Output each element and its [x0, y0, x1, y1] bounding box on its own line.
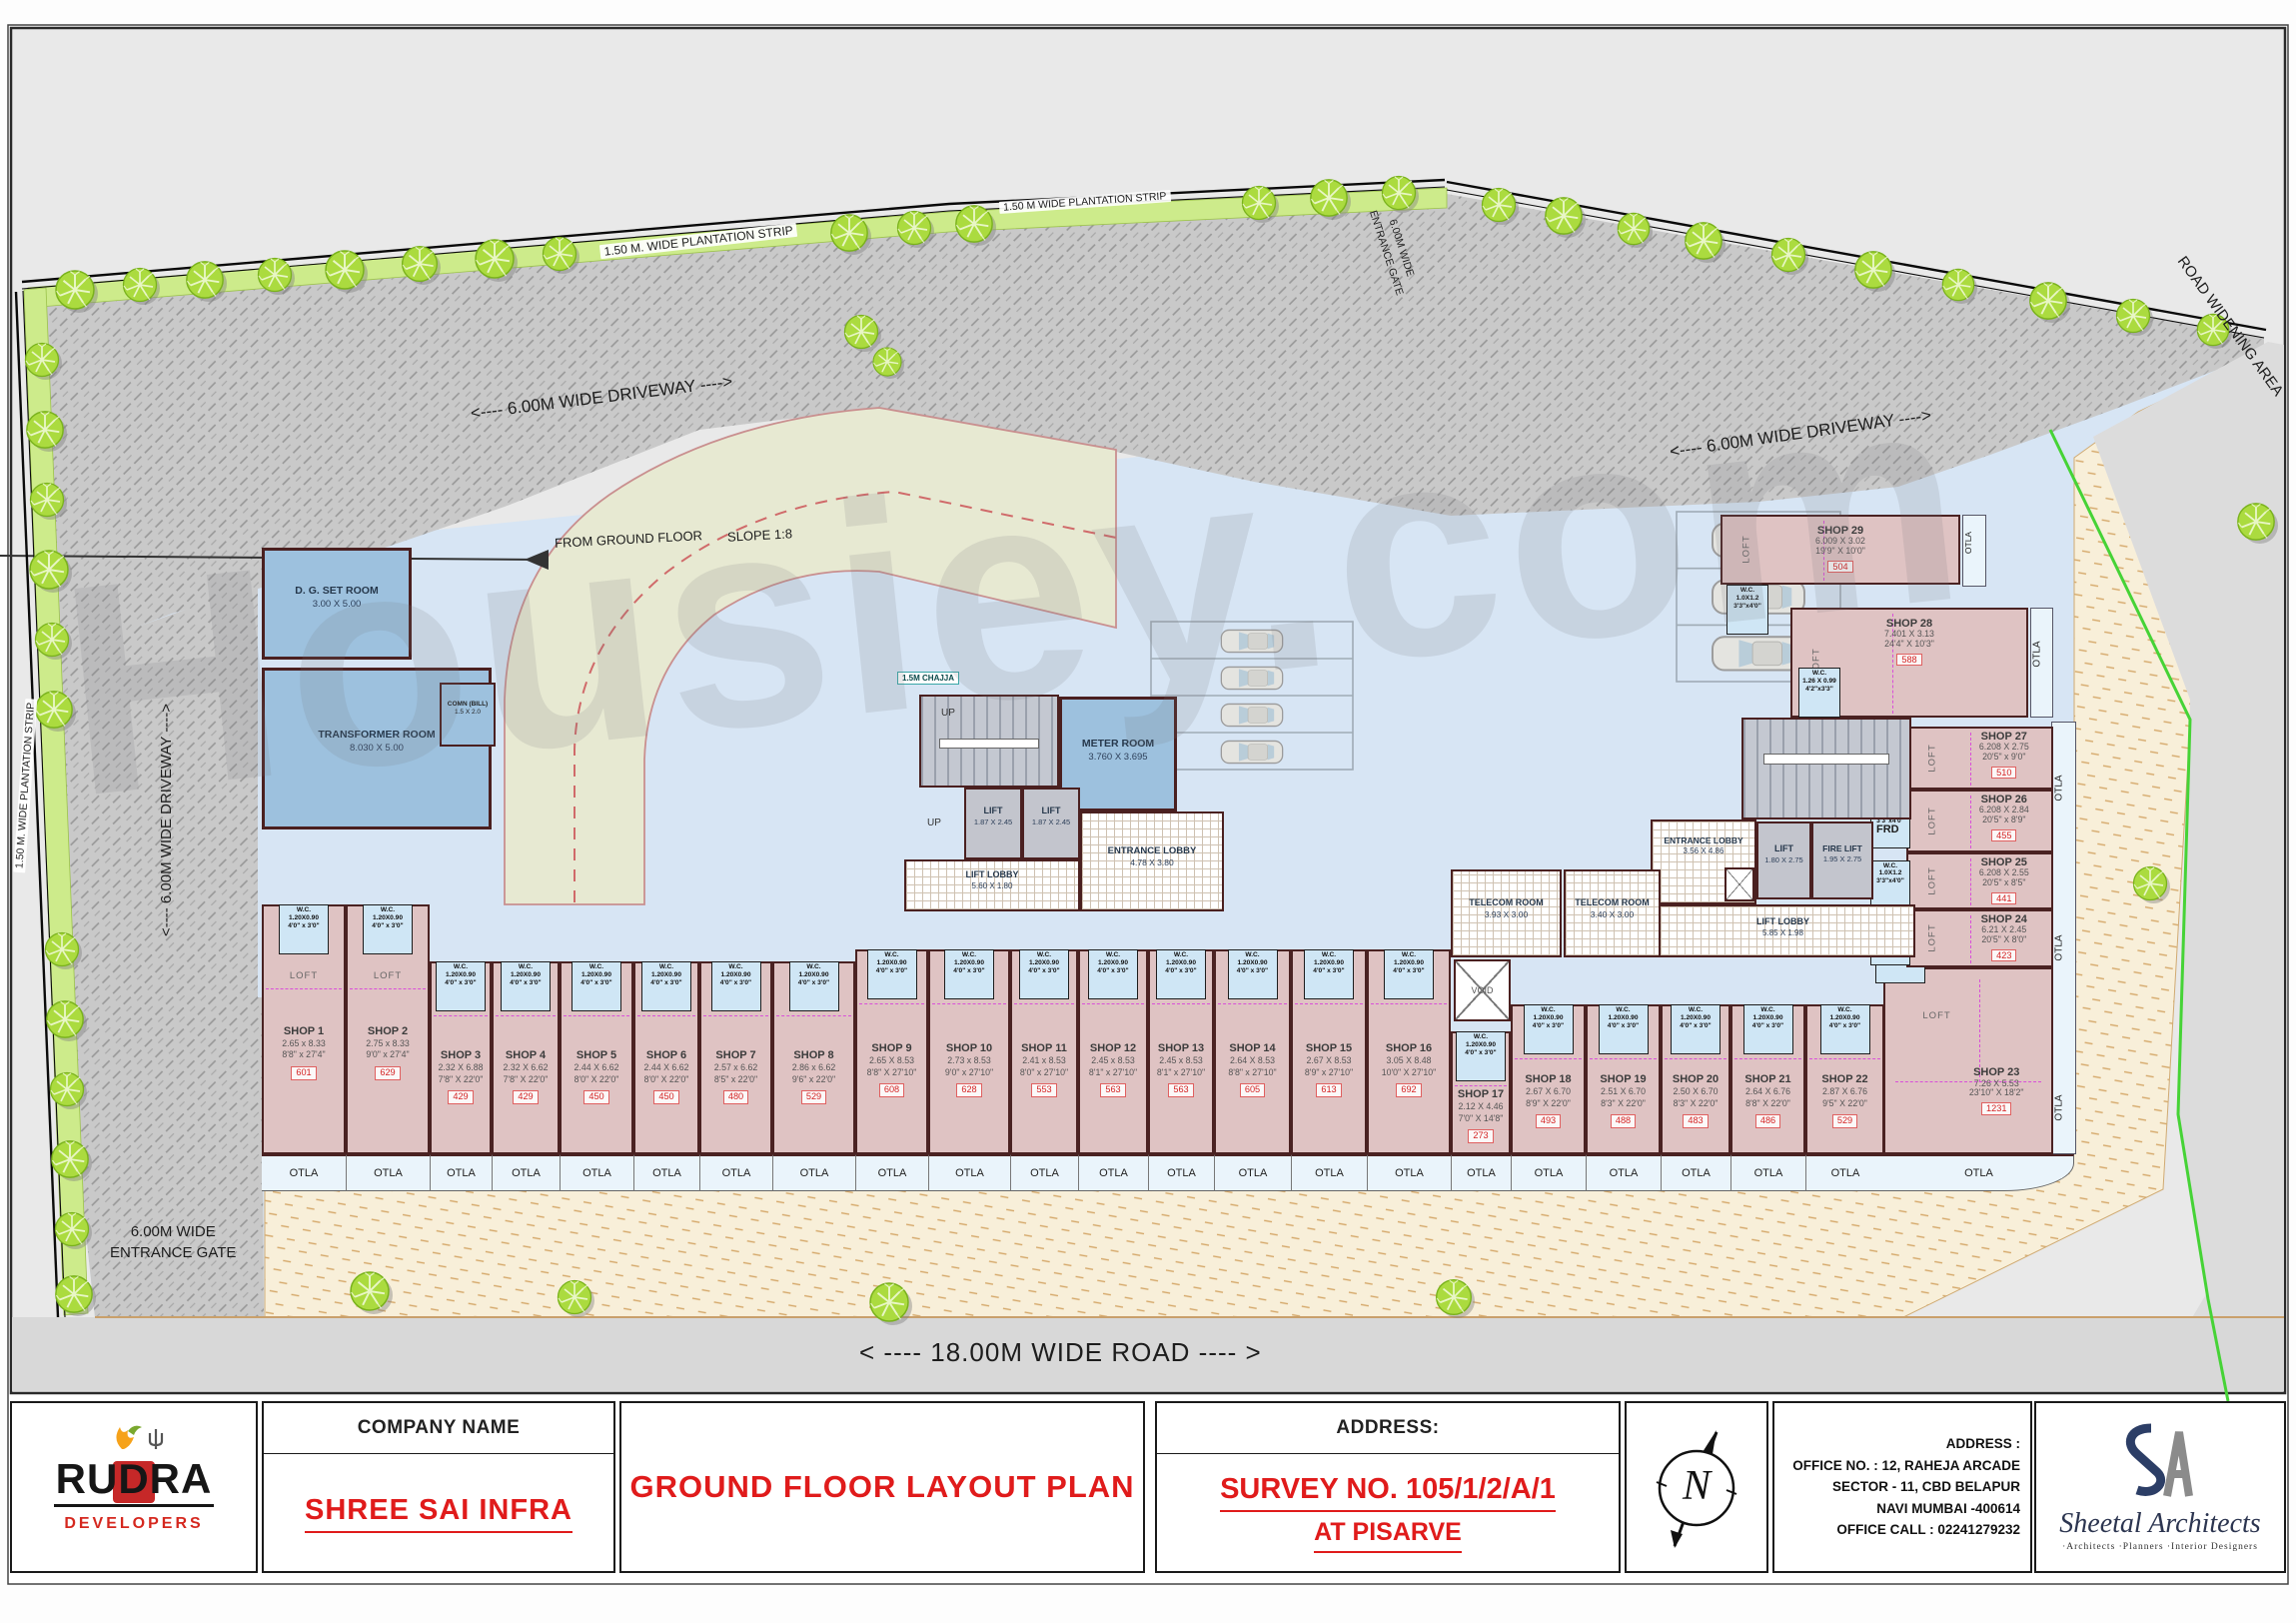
- wc-dim: 1.20X0.90: [281, 914, 327, 922]
- wc-ft: 4'0" x 3'0": [1021, 967, 1067, 975]
- loft-line: [932, 1003, 1006, 1004]
- wc-box: W.C.1.20X0.904'0" x 3'0": [1599, 1004, 1649, 1054]
- shop-label-stack: SHOP 62.44 X 6.628'0" X 22'0"450: [635, 1048, 697, 1106]
- shop-dim-m: 2.44 X 6.62: [635, 1062, 697, 1073]
- wc-ft: 4'0" x 3'0": [869, 967, 915, 975]
- shop-name: SHOP 16: [1369, 1041, 1449, 1055]
- wc-title: W.C.: [1745, 1006, 1791, 1014]
- wc-ft: 4'0" x 3'0": [1458, 1049, 1504, 1057]
- wc-ft: 4'0" x 3'0": [1526, 1022, 1572, 1030]
- otla-cell: OTLA: [1214, 1154, 1291, 1191]
- room-dim: 3.56 X 4.86: [1653, 846, 1754, 855]
- shop-area: 629: [375, 1066, 400, 1080]
- otla-cell: OTLA: [1367, 1154, 1451, 1191]
- wc-title: W.C.: [1306, 951, 1352, 959]
- architect-logo-icon: [2117, 1422, 2203, 1506]
- otla-cell: OTLA: [1805, 1154, 1884, 1191]
- chajja-label: 1.5M CHAJJA: [897, 672, 959, 685]
- wc-title: W.C.: [869, 951, 915, 959]
- loft-line: [776, 1015, 851, 1016]
- otla-cell: OTLA: [1451, 1154, 1511, 1191]
- wc-title: W.C.: [438, 963, 484, 971]
- shop-area: 450: [583, 1090, 608, 1104]
- shop-dim-m: 3.05 X 8.48: [1369, 1055, 1449, 1066]
- wc-dim: 1.20X0.90: [1458, 1041, 1504, 1049]
- wc-box: W.C.1.20X0.904'0" x 3'0": [789, 961, 839, 1011]
- shop-name: SHOP 9: [857, 1041, 926, 1055]
- shop-12: W.C.1.20X0.904'0" x 3'0"LOFTSHOP 122.45 …: [1078, 949, 1148, 1154]
- shop-dim-m: 2.57 x 6.62: [701, 1062, 770, 1073]
- shop-name: SHOP 19: [1588, 1072, 1659, 1086]
- wc-title: W.C.: [365, 906, 411, 914]
- shop-label-stack: SHOP 172.12 X 4.467'0" X 14'8"273: [1453, 1087, 1509, 1145]
- wc-title: W.C.: [503, 963, 549, 971]
- shop-label-stack: SHOP 192.51 X 6.708'3" X 22'0"488: [1588, 1072, 1659, 1130]
- otla-cell: OTLA: [928, 1154, 1010, 1191]
- shop-area: 553: [1031, 1083, 1056, 1097]
- wc-dim: 1.20X0.90: [574, 971, 619, 979]
- shop-dim-ft: 7'0" X 14'8": [1453, 1113, 1509, 1124]
- room-dim: 3.00 X 5.00: [265, 599, 409, 610]
- shop-14: W.C.1.20X0.904'0" x 3'0"LOFTSHOP 142.64 …: [1214, 949, 1291, 1154]
- titleblock-company-box: COMPANY NAME SHREE SAI INFRA: [262, 1401, 615, 1573]
- shop-24: W.C.1.0X1.23'3"x4'0"LOFTSHOP 246.21 X 2.…: [1906, 909, 2053, 967]
- shop-4: W.C.1.20X0.904'0" x 3'0"LOFTSHOP 42.32 X…: [492, 961, 560, 1154]
- titleblock-address-box: ADDRESS: SURVEY NO. 105/1/2/A/1 AT PISAR…: [1155, 1401, 1621, 1573]
- loft-line: [266, 988, 342, 989]
- shop-label-stack: SHOP 42.32 X 6.627'8" X 22'0"429: [494, 1048, 558, 1106]
- wc-ft: 4'0" x 3'0": [574, 979, 619, 987]
- shop-name: SHOP 12: [1080, 1041, 1146, 1055]
- room-label: ENTRANCE LOBBY: [1653, 835, 1754, 846]
- shop-label-stack: SHOP 202.50 X 6.708'3" X 22'0"483: [1663, 1072, 1728, 1130]
- shop-label-stack: SHOP 152.67 X 8.538'9" x 27'10"613: [1293, 1041, 1365, 1099]
- wc-box: W.C.1.20X0.904'0" x 3'0": [1524, 1004, 1574, 1054]
- shop-area: 423: [1991, 949, 2016, 961]
- wc-dim: 1.20X0.90: [1021, 959, 1067, 967]
- wc-box: W.C.1.20X0.904'0" x 3'0": [572, 961, 621, 1011]
- wc-title: W.C.: [1800, 670, 1838, 678]
- wc-title: W.C.: [1526, 1006, 1572, 1014]
- room-label: TELECOM ROOM: [1566, 897, 1659, 909]
- shop-dim-ft: 8'3" X 22'0": [1588, 1098, 1659, 1109]
- shop-15: W.C.1.20X0.904'0" x 3'0"LOFTSHOP 152.67 …: [1291, 949, 1367, 1154]
- wc-box: W.C.1.20X0.904'0" x 3'0": [711, 961, 761, 1011]
- titleblock-architect-box: Sheetal Architects ·Architects ·Planners…: [2034, 1401, 2286, 1573]
- shop-dim-ft: 8'0" X 22'0": [562, 1074, 631, 1085]
- loft-line: [637, 1015, 695, 1016]
- shop-dim-ft: 8'1" x 27'10": [1080, 1067, 1146, 1078]
- car-icon: [1221, 630, 1282, 652]
- shop-dim-ft: 9'0" x 27'10": [930, 1067, 1008, 1078]
- wc-box: W.C.1.20X0.904'0" x 3'0": [1019, 949, 1069, 999]
- shop-22: W.C.1.20X0.904'0" x 3'0"LOFTSHOP 222.87 …: [1805, 1004, 1884, 1154]
- shop-area: 493: [1536, 1114, 1561, 1128]
- architect-addr-line: OFFICE NO. : 12, RAHEJA ARCADE: [1792, 1455, 2020, 1477]
- wc-ft: 4'0" x 3'0": [281, 922, 327, 930]
- shop-label-stack: SHOP 276.208 X 2.7520'5" x 9'0"510: [1957, 731, 2051, 781]
- lift-left-1: LIFT 1.87 X 2.45: [964, 788, 1022, 859]
- wc-box: W.C.1.20X0.904'0" x 3'0": [436, 961, 486, 1011]
- loft-line: [496, 1015, 556, 1016]
- shop-dim-m: 2.87 X 6.76: [1807, 1086, 1882, 1097]
- wc-dim: 1.20X0.90: [503, 971, 549, 979]
- wc-title: W.C.: [1021, 951, 1067, 959]
- otla-cell: OTLA: [1661, 1154, 1730, 1191]
- otla-cell: OTLA: [560, 1154, 633, 1191]
- room-dim: 3.760 X 3.695: [1062, 752, 1174, 763]
- wc-dim: 1.20X0.90: [1822, 1014, 1868, 1022]
- wc-ft: 4'0" x 3'0": [791, 979, 837, 987]
- company-name: SHREE SAI INFRA: [305, 1494, 573, 1533]
- shop-dim-m: 2.45 x 8.53: [1080, 1055, 1146, 1066]
- titleblock-logo-box: RUDRA DEVELOPERS: [10, 1401, 258, 1573]
- wc-ft: 4'0" x 3'0": [1386, 967, 1432, 975]
- shop-area: 488: [1611, 1114, 1636, 1128]
- wc-box: W.C.1.20X0.904'0" x 3'0": [279, 904, 329, 954]
- shop-label-stack: SHOP 22.75 x 8.339'0" x 27'4"629: [348, 1024, 428, 1082]
- wc-dim: 1.20X0.90: [1230, 959, 1276, 967]
- wc-ft: 4'0" x 3'0": [1230, 967, 1276, 975]
- wc-ft: 4'0" x 3'0": [1745, 1022, 1791, 1030]
- room-label: COMN (BILL): [442, 701, 494, 709]
- drawing-sheet: Housiey.com D. G. SET ROOM 3.00 X 5.00 T…: [0, 0, 2296, 1623]
- loft-label: LOFT: [1927, 923, 1938, 951]
- wc-ft: 4'0" x 3'0": [1158, 967, 1204, 975]
- architect-addr-line: OFFICE CALL : 02241279232: [1792, 1519, 2020, 1541]
- shop-label-stack: SHOP 122.45 x 8.538'1" x 27'10"563: [1080, 1041, 1146, 1099]
- room-label: LIFT: [966, 806, 1020, 817]
- loft-line: [350, 988, 426, 989]
- car-icon: [1221, 741, 1282, 763]
- room-dg-set: D. G. SET ROOM 3.00 X 5.00: [262, 548, 412, 660]
- wc-dim: 1.26 X 0.99: [1800, 678, 1838, 686]
- wc-title: W.C.: [574, 963, 619, 971]
- otla-cell: OTLA: [262, 1154, 346, 1191]
- loft-line: [1515, 1058, 1582, 1059]
- shop-dim-ft: 8'8" X 27'10": [857, 1067, 926, 1078]
- otla-cell: OTLA: [430, 1154, 492, 1191]
- wc-title: W.C.: [1601, 1006, 1647, 1014]
- wc-title: W.C.: [1673, 1006, 1719, 1014]
- shop-area: 588: [1896, 654, 1921, 666]
- otla-cell: OTLA: [633, 1154, 699, 1191]
- shop-label-stack: SHOP 163.05 X 8.4810'0" X 27'10"692: [1369, 1041, 1449, 1099]
- shop-dim-ft: 7'8" X 22'0": [494, 1074, 558, 1085]
- wc-title: W.C.: [1822, 1006, 1868, 1014]
- otla-cell: OTLA: [1078, 1154, 1148, 1191]
- wc-title: W.C.: [1230, 951, 1276, 959]
- shop-16: W.C.1.20X0.904'0" x 3'0"LOFTSHOP 163.05 …: [1367, 949, 1451, 1154]
- loft-line: [1295, 1003, 1363, 1004]
- shop-13: W.C.1.20X0.904'0" x 3'0"LOFTSHOP 132.45 …: [1148, 949, 1214, 1154]
- shop-area: 563: [1100, 1083, 1125, 1097]
- wc-box: W.C.1.20X0.904'0" x 3'0": [1743, 1004, 1793, 1054]
- shop-area: 529: [801, 1090, 826, 1104]
- shop-dim-ft: 20'5" X 8'0": [1957, 935, 2051, 945]
- room-label: METER ROOM: [1062, 738, 1174, 752]
- shop-name: SHOP 6: [635, 1048, 697, 1062]
- loft-line: [1218, 1003, 1287, 1004]
- shop-label-stack: SHOP 256.208 X 2.5520'5" x 8'5"441: [1957, 856, 2051, 906]
- shop-dim-ft: 8'5" x 22'0": [701, 1074, 770, 1085]
- otla-cell: OTLA: [492, 1154, 560, 1191]
- otla-label: OTLA: [2054, 934, 2065, 960]
- wc-box: W.C.1.20X0.904'0" x 3'0": [641, 961, 691, 1011]
- shop-area: 429: [448, 1090, 473, 1104]
- company-name-label: COMPANY NAME: [264, 1403, 613, 1454]
- wc-ft: 4'0" x 3'0": [946, 967, 992, 975]
- shop-dim-m: 2.44 X 6.62: [562, 1062, 631, 1073]
- shop-3: W.C.1.20X0.904'0" x 3'0"LOFTSHOP 32.32 X…: [430, 961, 492, 1154]
- shop-dim-m: 2.67 X 6.70: [1513, 1086, 1584, 1097]
- wc-ft: 3'3"x4'0": [1728, 603, 1766, 611]
- shop-dim-ft: 8'8" x 27'10": [1216, 1067, 1289, 1078]
- wc-ft: 4'0" x 3'0": [1601, 1022, 1647, 1030]
- shop-label-stack: SHOP 92.65 X 8.538'8" X 27'10"608: [857, 1041, 926, 1099]
- wc-title: W.C.: [946, 951, 992, 959]
- shop-9: W.C.1.20X0.904'0" x 3'0"LOFTSHOP 92.65 X…: [855, 949, 928, 1154]
- shop-dim-ft: 24'4" X 10'3": [1792, 640, 2026, 650]
- wc-title: W.C.: [1458, 1033, 1504, 1041]
- shop-area: 608: [879, 1083, 904, 1097]
- void-label: VOID: [1471, 985, 1493, 995]
- shaft: [1724, 867, 1754, 901]
- room-dim: 5.60 X 1.80: [906, 881, 1078, 890]
- shop-name: SHOP 3: [432, 1048, 490, 1062]
- shop-26: W.C.1.0X1.23'3"x4'0"LOFTSHOP 266.208 X 2…: [1906, 790, 2053, 852]
- room-dim: 5.85 X 1.98: [1653, 928, 1913, 937]
- shop-area: 1231: [1981, 1102, 2011, 1114]
- loft-label: LOFT: [1927, 807, 1938, 834]
- wc-dim: 1.20X0.90: [365, 914, 411, 922]
- shop-dim-ft: 8'0" x 27'10": [1012, 1067, 1076, 1078]
- otla-strip-shop28: OTLA: [2030, 608, 2053, 718]
- shop-label-stack: SHOP 82.86 x 6.629'6" x 22'0"529: [774, 1048, 853, 1106]
- shop-area: 605: [1240, 1083, 1265, 1097]
- wc-box: W.C.1.20X0.904'0" x 3'0": [1088, 949, 1138, 999]
- shop-dim-m: 2.65 X 8.53: [857, 1055, 926, 1066]
- shop-27: W.C.1.0X1.23'3"x4'0"LOFTSHOP 276.208 X 2…: [1906, 727, 2053, 790]
- wc-box: W.C.1.26 X 0.994'2"x3'3": [1798, 668, 1840, 718]
- lift-left-2: LIFT 1.87 X 2.45: [1022, 788, 1080, 859]
- fire-lift: FIRE LIFT 1.95 X 2.75: [1811, 821, 1873, 899]
- wc-title: W.C.: [1728, 587, 1766, 595]
- gate-line2: ENTRANCE GATE: [110, 1242, 236, 1263]
- otla-cell: OTLA: [346, 1154, 430, 1191]
- otla-label: OTLA: [2032, 641, 2043, 667]
- shop-dim-ft: 8'3" X 22'0": [1663, 1098, 1728, 1109]
- shop-19: W.C.1.20X0.904'0" x 3'0"LOFTSHOP 192.51 …: [1586, 1004, 1661, 1154]
- shop-dim-ft: 19'9" X 10'0": [1722, 547, 1958, 557]
- wc-title: W.C.: [643, 963, 689, 971]
- wc-dim: 1.20X0.90: [1306, 959, 1352, 967]
- wc-ft: 4'0" x 3'0": [713, 979, 759, 987]
- shop-area: 529: [1832, 1114, 1857, 1128]
- shop-17: W.C.1.20X0.904'0" x 3'0"LOFTSHOP 172.12 …: [1451, 1031, 1511, 1154]
- shop-label-stack: SHOP 237.26 X 5.5323'10" X 18'2"1231: [1941, 1066, 2051, 1116]
- shop-label-stack: SHOP 52.44 X 6.628'0" X 22'0"450: [562, 1048, 631, 1106]
- shop-label-stack: SHOP 246.21 X 2.4520'5" X 8'0"423: [1957, 913, 2051, 963]
- shop-dim-ft: 9'6" x 22'0": [774, 1074, 853, 1085]
- wc-dim: 1.20X0.90: [869, 959, 915, 967]
- shop-dim-m: 2.64 X 6.76: [1732, 1086, 1803, 1097]
- wc-title: W.C.: [791, 963, 837, 971]
- entrance-gate-label-bottom: 6.00M WIDE ENTRANCE GATE: [110, 1221, 236, 1263]
- wc-dim: 1.20X0.90: [1745, 1014, 1791, 1022]
- wc-dim: 1.20X0.90: [1158, 959, 1204, 967]
- wc-box: W.C.1.20X0.904'0" x 3'0": [867, 949, 917, 999]
- car-icon: [1221, 704, 1282, 726]
- wc-ft: 4'0" x 3'0": [438, 979, 484, 987]
- developer-name: RUDRA: [54, 1455, 215, 1507]
- shop-area: 480: [723, 1090, 748, 1104]
- developer-sub: DEVELOPERS: [12, 1515, 256, 1533]
- otla-cell: OTLA: [699, 1154, 772, 1191]
- room-label: TELECOM ROOM: [1453, 897, 1560, 909]
- shop-label-stack: SHOP 266.208 X 2.8420'5" x 8'9"455: [1957, 794, 2051, 843]
- wc-dim: 1.20X0.90: [1601, 1014, 1647, 1022]
- shop-name: SHOP 22: [1807, 1072, 1882, 1086]
- shop-dim-m: 2.12 X 4.46: [1453, 1101, 1509, 1112]
- shop-label-stack: SHOP 102.73 x 8.539'0" x 27'10"628: [930, 1041, 1008, 1099]
- shop-name: SHOP 2: [348, 1024, 428, 1038]
- telecom-room-1: TELECOM ROOM 3.93 X 3.00: [1451, 869, 1562, 957]
- otla-cell: OTLA: [1730, 1154, 1805, 1191]
- otla-strip-vertical: OTLAOTLAOTLA: [2051, 722, 2076, 1154]
- shop-dim-ft: 8'9" X 22'0": [1513, 1098, 1584, 1109]
- shop-dim-ft: 10'0" X 27'10": [1369, 1067, 1449, 1078]
- wc-dim: 1.20X0.90: [946, 959, 992, 967]
- shop-name: SHOP 1: [264, 1024, 344, 1038]
- stair-up-label: UP: [941, 708, 955, 719]
- loft-line: [859, 1003, 924, 1004]
- otla-strip-shop29: OTLA: [1962, 515, 1986, 587]
- shop-label-stack: SHOP 32.32 X 6.887'8" X 22'0"429: [432, 1048, 490, 1106]
- shop-10: W.C.1.20X0.904'0" x 3'0"LOFTSHOP 102.73 …: [928, 949, 1010, 1154]
- shop-2: W.C.1.20X0.904'0" x 3'0"LOFTSHOP 22.75 x…: [346, 904, 430, 1154]
- shop-area: 455: [1991, 829, 2016, 841]
- shop-25: W.C.1.0X1.23'3"x4'0"LOFTSHOP 256.208 X 2…: [1906, 852, 2053, 909]
- room-dim: 1.5 X 2.0: [442, 709, 494, 717]
- shop-dim-m: 2.75 x 8.33: [348, 1038, 428, 1049]
- otla-cell: OTLA: [1291, 1154, 1367, 1191]
- wc-box: W.C.1.20X0.904'0" x 3'0": [1384, 949, 1434, 999]
- room-dim: 1.87 X 2.45: [966, 817, 1020, 826]
- shop-dim-ft: 8'8" x 27'4": [264, 1049, 344, 1060]
- architect-addr-label: ADDRESS :: [1792, 1433, 2020, 1455]
- room-label: LIFT: [1024, 806, 1078, 817]
- shop-dim-ft: 8'8" X 22'0": [1732, 1098, 1803, 1109]
- drawing-title: GROUND FLOOR LAYOUT PLAN: [629, 1469, 1134, 1505]
- shop-dim-ft: 20'5" x 9'0": [1957, 753, 2051, 763]
- wc-ft: 4'0" x 3'0": [643, 979, 689, 987]
- shop-dim-ft: 20'5" x 8'9": [1957, 815, 2051, 825]
- loft-line: [703, 1015, 768, 1016]
- shop-29: W.C.1.0X1.23'3"x4'0"LOFTSHOP 296.009 X 3…: [1721, 515, 1960, 585]
- lift-right: LIFT 1.80 X 2.75: [1756, 821, 1811, 899]
- shop-name: SHOP 7: [701, 1048, 770, 1062]
- shop-label-stack: SHOP 212.64 X 6.768'8" X 22'0"486: [1732, 1072, 1803, 1130]
- wc-box: W.C.1.20X0.904'0" x 3'0": [1820, 1004, 1870, 1054]
- room-label: LIFT LOBBY: [906, 869, 1078, 881]
- loft-line: [1082, 1003, 1144, 1004]
- otla-cell: OTLA: [772, 1154, 855, 1191]
- loft-label: LOFT: [1922, 1010, 1950, 1021]
- loft-line: [434, 1015, 488, 1016]
- shop-label-stack: SHOP 142.64 X 8.538'8" x 27'10"605: [1216, 1041, 1289, 1099]
- loft-line: [1809, 1058, 1880, 1059]
- shop-28: W.C.1.26 X 0.994'2"x3'3"LOFTSHOP 287.401…: [1790, 608, 2028, 718]
- architect-name: Sheetal Architects: [2059, 1508, 2260, 1540]
- shop-18: W.C.1.20X0.904'0" x 3'0"LOFTSHOP 182.67 …: [1511, 1004, 1586, 1154]
- shop-label-stack: SHOP 296.009 X 3.0219'9" X 10'0"504: [1722, 525, 1958, 575]
- wc-title: W.C.: [1090, 951, 1136, 959]
- wc-dim: 1.20X0.90: [791, 971, 837, 979]
- telecom-room-2: TELECOM ROOM 3.40 X 3.00: [1564, 869, 1661, 957]
- otla-label: OTLA: [2054, 775, 2065, 801]
- shop-area: 628: [956, 1083, 981, 1097]
- north-letter: N: [1683, 1462, 1711, 1510]
- otla-label: OTLA: [2054, 1094, 2065, 1120]
- shop-area: 483: [1683, 1114, 1708, 1128]
- shop-name: SHOP 4: [494, 1048, 558, 1062]
- loft-label: LOFT: [1927, 744, 1938, 772]
- wc-dim: 1.20X0.90: [1673, 1014, 1719, 1022]
- shop-name: SHOP 14: [1216, 1041, 1289, 1055]
- shop-label-stack: SHOP 12.65 x 8.338'8" x 27'4"601: [264, 1024, 344, 1082]
- shop-name: SHOP 5: [562, 1048, 631, 1062]
- otla-cell: OTLA: [855, 1154, 928, 1191]
- room-dim: 4.78 X 3.80: [1082, 857, 1222, 867]
- address-label: ADDRESS:: [1157, 1403, 1619, 1454]
- loft-line: [1734, 1058, 1801, 1059]
- otla-cell: OTLA: [1010, 1154, 1078, 1191]
- shop-dim-m: 2.32 X 6.62: [494, 1062, 558, 1073]
- shop-area: 429: [513, 1090, 538, 1104]
- survey-location: AT PISARVE: [1314, 1518, 1462, 1553]
- loft-line: [1665, 1058, 1726, 1059]
- driveway-label-left: <---- 6.00M WIDE DRIVEWAY ---->: [158, 704, 175, 936]
- wc-title: W.C.: [1386, 951, 1432, 959]
- wc-dim: 1.20X0.90: [643, 971, 689, 979]
- wc-title: W.C.: [713, 963, 759, 971]
- wc-box: W.C.1.20X0.904'0" x 3'0": [1228, 949, 1278, 999]
- shop-area: 510: [1991, 767, 2016, 779]
- staircase-left: [919, 695, 1059, 788]
- shop-dim-ft: 20'5" x 8'5": [1957, 878, 2051, 888]
- otla-cell: OTLA: [1586, 1154, 1661, 1191]
- room-dim: 3.40 X 3.00: [1566, 909, 1659, 919]
- wc-box: W.C.1.20X0.904'0" x 3'0": [1156, 949, 1206, 999]
- wc-dim: 1.0X1.2: [1728, 595, 1766, 603]
- road-label: < ---- 18.00M WIDE ROAD ---- >: [859, 1337, 1262, 1368]
- loft-label: LOFT: [1927, 866, 1938, 894]
- shop-name: SHOP 23: [1941, 1066, 2051, 1078]
- shop-dim-m: 2.45 x 8.53: [1150, 1055, 1212, 1066]
- shop-name: SHOP 18: [1513, 1072, 1584, 1086]
- shop-label-stack: SHOP 72.57 x 6.628'5" x 22'0"480: [701, 1048, 770, 1106]
- wc-dim: 1.20X0.90: [1386, 959, 1432, 967]
- shop-area: 486: [1755, 1114, 1780, 1128]
- shop-name: SHOP 10: [930, 1041, 1008, 1055]
- room-label: LIFT: [1758, 843, 1809, 855]
- shop-name: SHOP 15: [1293, 1041, 1365, 1055]
- loft-line: [1371, 1003, 1447, 1004]
- wc-ft: 4'0" x 3'0": [1090, 967, 1136, 975]
- lift-lobby-right: LIFT LOBBY 5.85 X 1.98: [1651, 904, 1915, 957]
- loft-line: [1152, 1003, 1210, 1004]
